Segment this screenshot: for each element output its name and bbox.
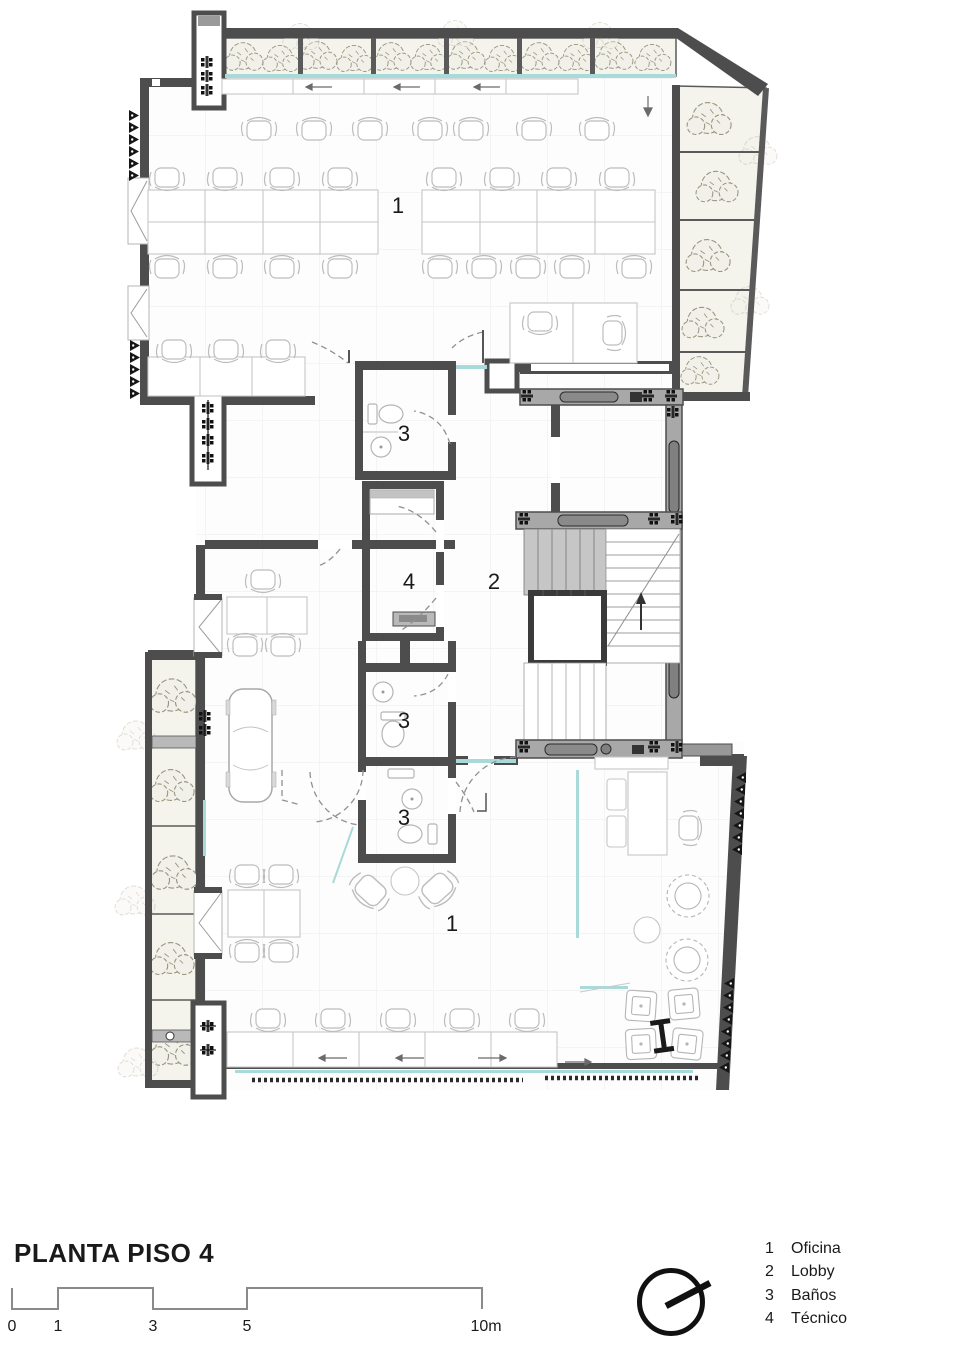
- room-label-lobby: 2: [488, 569, 500, 594]
- planter-column-left: [115, 650, 197, 1088]
- legend-label-tecnico: Técnico: [791, 1310, 847, 1327]
- elevator-shaft: [531, 593, 604, 663]
- north-arrow-icon: [640, 1271, 711, 1334]
- scale-label-1: 1: [54, 1318, 63, 1335]
- page-title: PLANTA PISO 4: [14, 1238, 214, 1268]
- floor-plan-drawing: 1 1 2 3 3 3 4 PLANTA PISO 4 0 1 3 5 10m …: [0, 0, 960, 1352]
- scale-label-5: 5: [243, 1318, 252, 1335]
- room-label-bath-mid: 3: [398, 708, 410, 733]
- car: [226, 689, 276, 802]
- legend-num-1: 1: [765, 1240, 774, 1257]
- legend-num-4: 4: [765, 1310, 774, 1327]
- room-label-bath-low: 3: [398, 805, 410, 830]
- room-label-office-lower: 1: [446, 911, 458, 936]
- legend: 1 Oficina 2 Lobby 3 Baños 4 Técnico: [765, 1240, 847, 1327]
- legend-label-oficina: Oficina: [791, 1240, 841, 1257]
- legend-num-2: 2: [765, 1263, 774, 1280]
- meeting-room-furniture: [227, 597, 307, 634]
- column-cap: [198, 16, 220, 26]
- scale-label-10m: 10m: [470, 1318, 501, 1335]
- facade-track: [252, 1078, 698, 1080]
- scale-label-3: 3: [149, 1318, 158, 1335]
- legend-num-3: 3: [765, 1287, 774, 1304]
- room-label-bath-top: 3: [398, 421, 410, 446]
- room-label-tecnico: 4: [403, 569, 415, 594]
- room-label-office-upper: 1: [392, 193, 404, 218]
- planter-column-right: [672, 85, 777, 401]
- scale-bar: 0 1 3 5 10m: [8, 1288, 502, 1335]
- scale-label-0: 0: [8, 1318, 17, 1335]
- legend-label-banos: Baños: [791, 1287, 836, 1304]
- floor-plan-page: 1 1 2 3 3 3 4 PLANTA PISO 4 0 1 3 5 10m …: [0, 0, 960, 1352]
- legend-label-lobby: Lobby: [791, 1263, 835, 1280]
